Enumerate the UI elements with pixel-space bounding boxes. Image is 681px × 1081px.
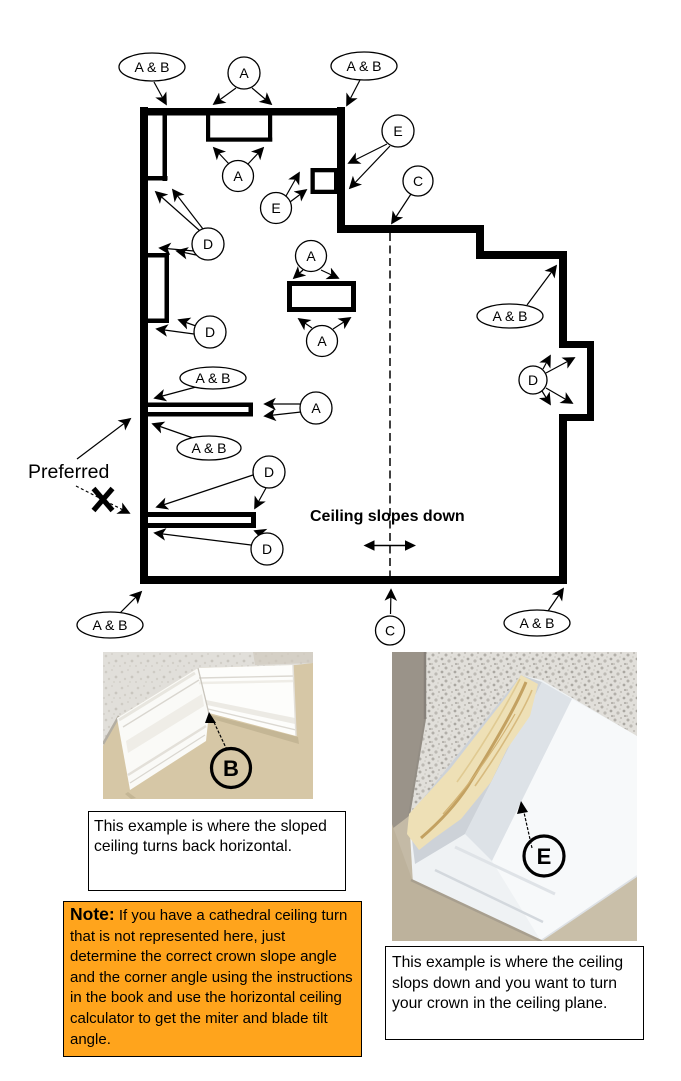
svg-text:D: D xyxy=(205,324,215,340)
svg-text:A: A xyxy=(233,168,243,184)
svg-text:C: C xyxy=(385,623,395,639)
svg-text:A: A xyxy=(306,248,316,264)
svg-text:D: D xyxy=(262,541,272,557)
svg-text:D: D xyxy=(203,236,213,252)
svg-text:E: E xyxy=(393,123,402,139)
svg-text:Preferred: Preferred xyxy=(28,461,109,483)
svg-text:A & B: A & B xyxy=(492,308,527,324)
svg-text:D: D xyxy=(264,464,274,480)
svg-text:A & B: A & B xyxy=(134,59,169,75)
svg-text:A & B: A & B xyxy=(195,370,230,386)
svg-text:E: E xyxy=(537,844,552,869)
svg-text:A & B: A & B xyxy=(519,615,554,631)
svg-text:A: A xyxy=(311,400,321,416)
svg-text:B: B xyxy=(223,756,239,781)
svg-text:A & B: A & B xyxy=(346,58,381,74)
svg-text:D: D xyxy=(528,372,538,388)
svg-text:A: A xyxy=(317,333,327,349)
svg-text:A & B: A & B xyxy=(92,617,127,633)
svg-text:A: A xyxy=(239,65,249,81)
svg-text:C: C xyxy=(413,173,423,189)
svg-text:A & B: A & B xyxy=(191,440,226,456)
svg-text:E: E xyxy=(271,200,280,216)
svg-text:Ceiling slopes down: Ceiling slopes down xyxy=(310,508,465,525)
